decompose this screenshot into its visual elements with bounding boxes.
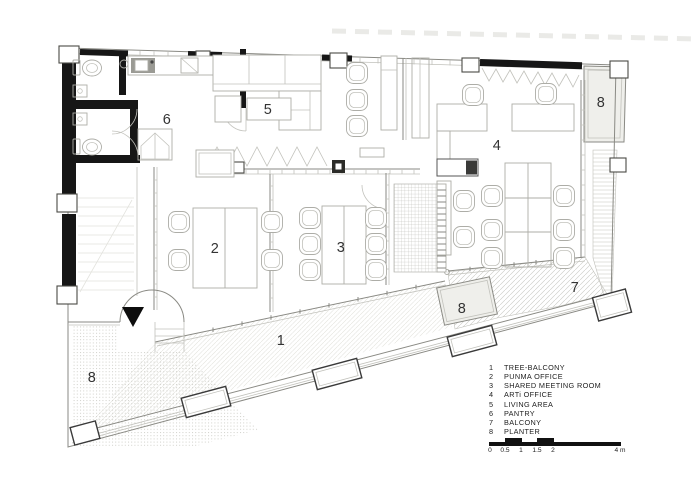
scale-tick: 1.5 xyxy=(532,447,541,454)
label-tree-balcony: 1 xyxy=(277,333,286,349)
indoor-tree-planter xyxy=(138,129,172,160)
legend-row: 5LIVING AREA xyxy=(489,400,601,409)
scale-tick: 0.5 xyxy=(500,447,509,454)
label-living-area: 5 xyxy=(264,102,273,118)
legend-label: LIVING AREA xyxy=(504,400,553,409)
entrance-arrow-icon xyxy=(122,307,144,327)
legend-num: 4 xyxy=(489,390,504,399)
legend-num: 3 xyxy=(489,381,504,390)
scale-end-label: 4 m xyxy=(615,447,626,454)
legend-label: PUNMA OFFICE xyxy=(504,372,563,381)
legend-row: 3SHARED MEETING ROOM xyxy=(489,381,601,390)
scale-tick: 2 xyxy=(551,447,555,454)
green-wall xyxy=(394,184,446,272)
legend-num: 6 xyxy=(489,409,504,418)
legend: 1TREE-BALCONY 2PUNMA OFFICE 3SHARED MEET… xyxy=(489,363,601,436)
sawtooth-window-top xyxy=(482,68,579,87)
upper-reference-line xyxy=(332,31,698,39)
legend-num: 7 xyxy=(489,418,504,427)
legend-row: 7BALCONY xyxy=(489,418,601,427)
reception-desk xyxy=(196,150,234,177)
legend-num: 5 xyxy=(489,400,504,409)
scale-bar: 0 0.5 1 1.5 2 4 m xyxy=(489,434,639,458)
scale-tick: 1 xyxy=(519,447,523,454)
legend-label: SHARED MEETING ROOM xyxy=(504,381,601,390)
staircase xyxy=(78,167,137,296)
arti-office-furniture xyxy=(437,84,575,269)
label-balcony: 7 xyxy=(571,280,580,296)
legend-label: TREE-BALCONY xyxy=(504,363,565,372)
legend-num: 1 xyxy=(489,363,504,372)
label-planter-top-right: 8 xyxy=(597,95,606,111)
legend-row: 2PUNMA OFFICE xyxy=(489,372,601,381)
label-planter-bottom-left: 8 xyxy=(88,370,97,386)
legend-label: ARTi OFFICE xyxy=(504,390,552,399)
legend-label: PANTRY xyxy=(504,409,535,418)
label-arti-office: 4 xyxy=(493,138,502,154)
punma-office-furniture xyxy=(169,208,283,288)
legend-label: BALCONY xyxy=(504,418,541,427)
label-planter-mid: 8 xyxy=(458,301,467,317)
legend-row: 4ARTi OFFICE xyxy=(489,390,601,399)
scale-bar-segment xyxy=(505,438,522,442)
scale-bar-base xyxy=(489,442,621,446)
legend-row: 1TREE-BALCONY xyxy=(489,363,601,372)
scale-bar-segment xyxy=(537,438,554,442)
label-pantry: 6 xyxy=(163,112,172,128)
label-punma-office: 2 xyxy=(211,241,220,257)
legend-row: 6PANTRY xyxy=(489,409,601,418)
scale-tick: 0 xyxy=(488,447,492,454)
legend-num: 2 xyxy=(489,372,504,381)
floor-plan-page: 1 2 3 4 5 6 7 8 8 8 1TREE-BALCONY 2PUNMA… xyxy=(0,0,700,495)
label-shared-meeting-room: 3 xyxy=(337,240,346,256)
